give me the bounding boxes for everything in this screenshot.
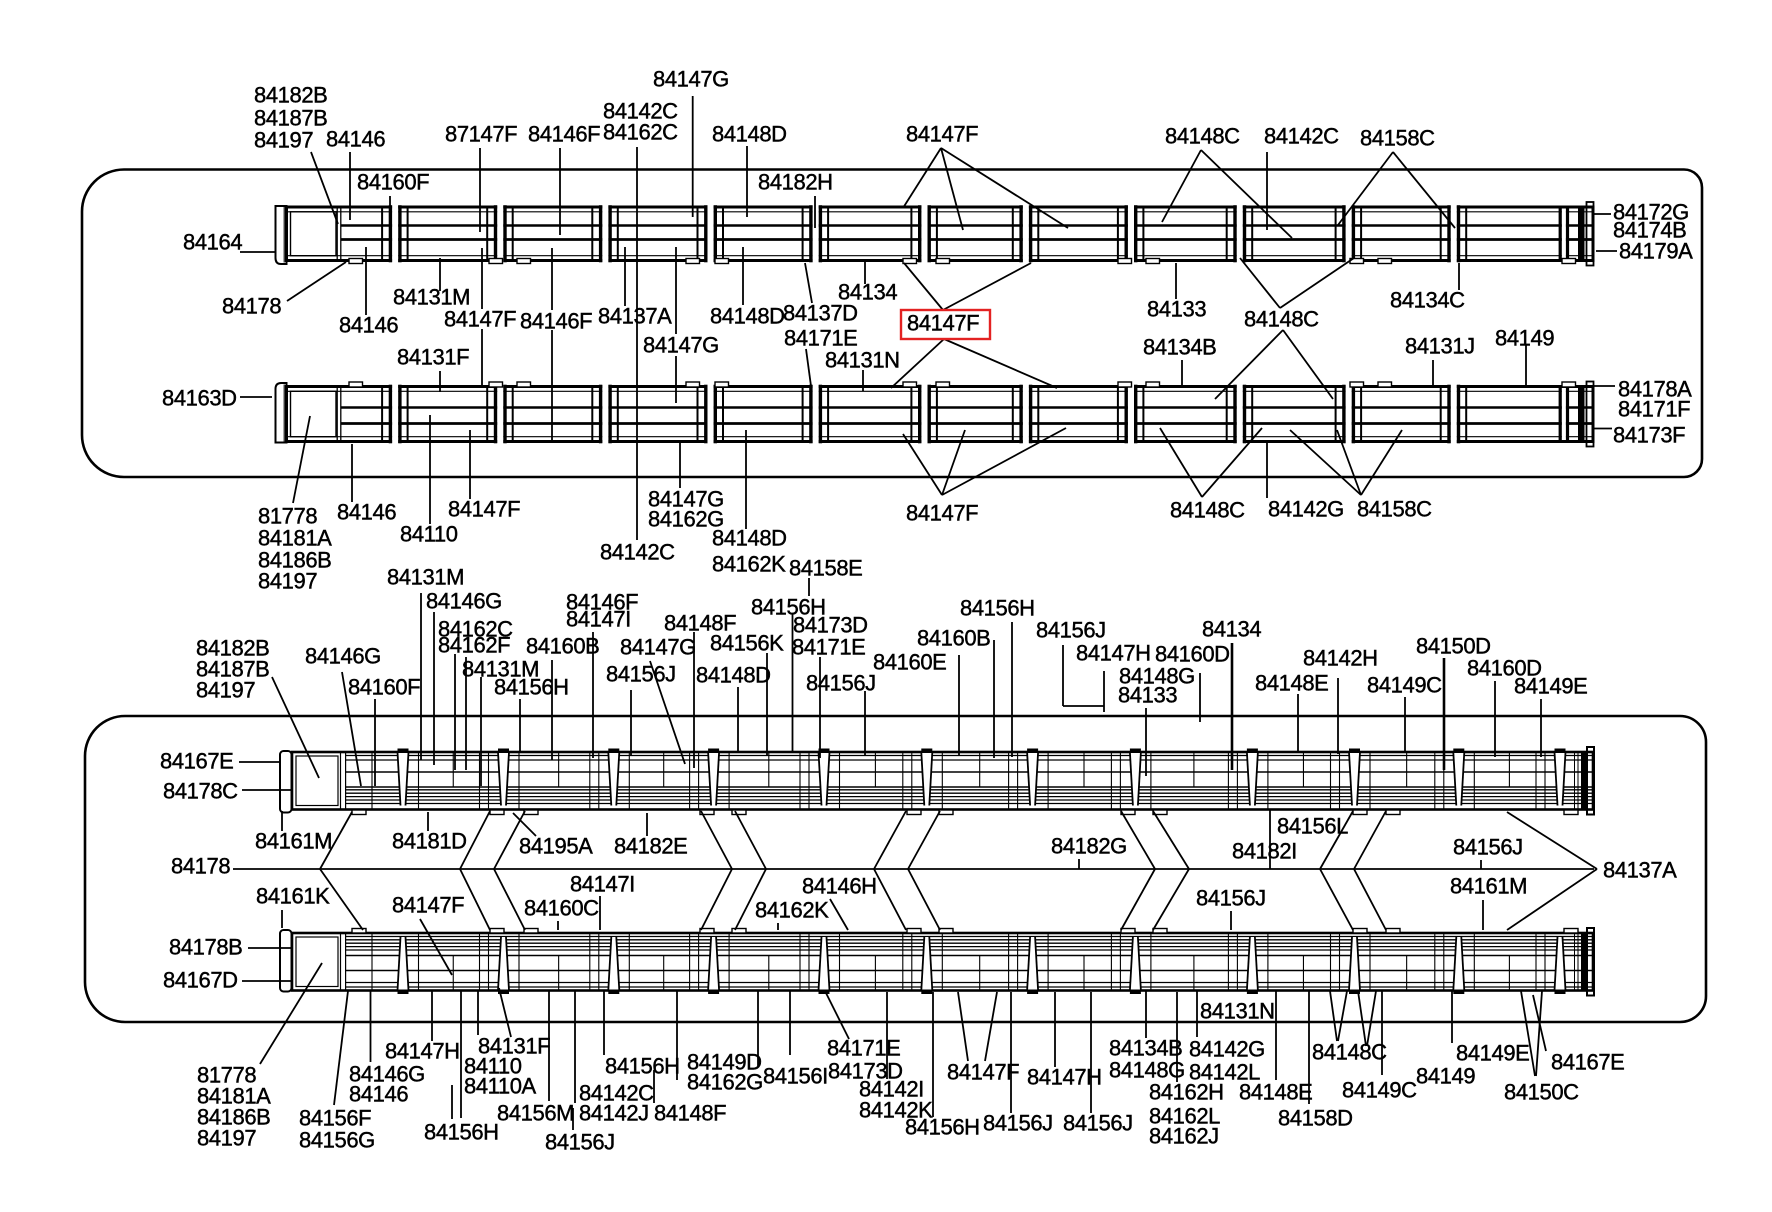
svg-text:84163D: 84163D	[162, 386, 237, 411]
svg-text:84147F: 84147F	[907, 311, 979, 336]
svg-text:84149E: 84149E	[1456, 1041, 1529, 1066]
svg-text:84162G: 84162G	[687, 1070, 763, 1095]
svg-text:84147I: 84147I	[566, 607, 631, 632]
svg-text:84133: 84133	[1118, 683, 1177, 708]
svg-text:84156M: 84156M	[497, 1101, 574, 1126]
svg-text:84147G: 84147G	[653, 67, 729, 92]
svg-text:84147F: 84147F	[444, 307, 516, 332]
svg-text:84134: 84134	[1202, 617, 1261, 642]
svg-text:84110A: 84110A	[464, 1074, 537, 1099]
svg-text:84134: 84134	[838, 280, 897, 305]
svg-text:84148C: 84148C	[1244, 307, 1319, 332]
svg-text:84162J: 84162J	[1149, 1124, 1219, 1149]
svg-text:84179A: 84179A	[1619, 239, 1693, 264]
svg-text:84142C: 84142C	[1264, 124, 1339, 149]
svg-text:84148C: 84148C	[1312, 1040, 1387, 1065]
svg-text:84133: 84133	[1147, 297, 1206, 322]
svg-text:84171E: 84171E	[792, 635, 865, 660]
svg-text:84147G: 84147G	[643, 333, 719, 358]
svg-text:84160B: 84160B	[526, 634, 599, 659]
svg-text:84167D: 84167D	[163, 968, 238, 993]
svg-text:84171F: 84171F	[1618, 397, 1690, 422]
svg-text:84156I: 84156I	[763, 1064, 828, 1089]
svg-text:84182I: 84182I	[1232, 839, 1297, 864]
svg-text:84197: 84197	[197, 1126, 256, 1151]
svg-text:84197: 84197	[258, 569, 317, 594]
svg-text:84131J: 84131J	[1405, 334, 1475, 359]
svg-text:84147H: 84147H	[385, 1039, 460, 1064]
svg-text:84156K: 84156K	[710, 631, 784, 656]
svg-text:84156H: 84156H	[960, 596, 1035, 621]
svg-text:84142G: 84142G	[1268, 497, 1344, 522]
svg-text:84148C: 84148C	[1165, 124, 1240, 149]
svg-text:84146G: 84146G	[426, 589, 502, 614]
svg-text:84182H: 84182H	[758, 170, 833, 195]
svg-text:84147G: 84147G	[620, 635, 696, 660]
svg-text:84134B: 84134B	[1143, 335, 1216, 360]
svg-text:84137A: 84137A	[1603, 858, 1677, 883]
svg-text:84156J: 84156J	[545, 1130, 615, 1155]
svg-text:84156J: 84156J	[1063, 1111, 1133, 1136]
svg-text:84160F: 84160F	[348, 675, 420, 700]
svg-text:84147F: 84147F	[392, 893, 464, 918]
svg-text:84156J: 84156J	[1036, 618, 1106, 643]
svg-text:84131N: 84131N	[825, 348, 900, 373]
svg-text:84147H: 84147H	[1076, 641, 1151, 666]
svg-text:84142H: 84142H	[1303, 646, 1378, 671]
svg-text:84160B: 84160B	[917, 626, 990, 651]
svg-text:84182B: 84182B	[254, 83, 327, 108]
svg-text:84158C: 84158C	[1360, 126, 1435, 151]
svg-text:84156J: 84156J	[806, 671, 876, 696]
svg-text:84182G: 84182G	[1051, 834, 1127, 859]
svg-text:84146: 84146	[326, 127, 385, 152]
svg-text:84178: 84178	[222, 294, 281, 319]
svg-text:84149C: 84149C	[1367, 673, 1442, 698]
svg-text:84164: 84164	[183, 230, 242, 255]
svg-text:84156G: 84156G	[299, 1128, 375, 1153]
svg-text:84148D: 84148D	[696, 663, 771, 688]
svg-text:84161M: 84161M	[255, 829, 332, 854]
svg-text:84149C: 84149C	[1342, 1078, 1417, 1103]
svg-text:84158E: 84158E	[789, 556, 862, 581]
svg-text:84137A: 84137A	[598, 304, 672, 329]
svg-text:84158C: 84158C	[1357, 497, 1432, 522]
svg-text:84146F: 84146F	[520, 309, 592, 334]
svg-text:84156J: 84156J	[983, 1111, 1053, 1136]
svg-text:84142G: 84142G	[1189, 1037, 1265, 1062]
svg-text:84160F: 84160F	[357, 170, 429, 195]
svg-text:84160E: 84160E	[873, 650, 946, 675]
svg-text:84156H: 84156H	[494, 675, 569, 700]
svg-text:84146G: 84146G	[305, 644, 381, 669]
svg-text:84181D: 84181D	[392, 829, 467, 854]
svg-text:84142C: 84142C	[600, 540, 675, 565]
svg-text:84156H: 84156H	[424, 1120, 499, 1145]
svg-text:84149: 84149	[1495, 326, 1554, 351]
svg-text:84131M: 84131M	[387, 565, 464, 590]
svg-text:84148F: 84148F	[654, 1101, 726, 1126]
svg-text:84171E: 84171E	[827, 1036, 900, 1061]
svg-text:84149: 84149	[1416, 1064, 1475, 1089]
svg-text:84162C: 84162C	[603, 120, 678, 145]
svg-text:84146: 84146	[339, 313, 398, 338]
svg-text:84178: 84178	[171, 854, 230, 879]
svg-text:84148D: 84148D	[712, 122, 787, 147]
svg-text:84178B: 84178B	[169, 935, 242, 960]
svg-text:84146: 84146	[349, 1082, 408, 1107]
svg-text:87147F: 87147F	[445, 122, 517, 147]
svg-text:84146H: 84146H	[802, 874, 877, 899]
svg-text:84148E: 84148E	[1239, 1080, 1312, 1105]
svg-text:84197: 84197	[196, 678, 255, 703]
svg-text:84147F: 84147F	[448, 497, 520, 522]
svg-text:84162F: 84162F	[438, 633, 510, 658]
svg-text:84162K: 84162K	[755, 898, 829, 923]
svg-text:84148D: 84148D	[712, 526, 787, 551]
svg-text:84161M: 84161M	[1450, 874, 1527, 899]
svg-text:84148E: 84148E	[1255, 671, 1328, 696]
svg-text:84146F: 84146F	[528, 122, 600, 147]
svg-text:84195A: 84195A	[519, 834, 593, 859]
svg-text:84167E: 84167E	[160, 749, 233, 774]
svg-text:84149E: 84149E	[1514, 674, 1587, 699]
svg-text:84148C: 84148C	[1170, 498, 1245, 523]
svg-text:84162H: 84162H	[1149, 1080, 1224, 1105]
svg-text:84147F: 84147F	[906, 501, 978, 526]
svg-text:84134C: 84134C	[1390, 288, 1465, 313]
svg-text:84148D: 84148D	[710, 304, 785, 329]
svg-text:84178C: 84178C	[163, 779, 238, 804]
svg-text:84156H: 84156H	[905, 1115, 980, 1140]
svg-text:84146: 84146	[337, 500, 396, 525]
svg-text:84131F: 84131F	[397, 345, 469, 370]
svg-text:84182E: 84182E	[614, 834, 687, 859]
svg-text:84158D: 84158D	[1278, 1106, 1353, 1131]
svg-text:84147I: 84147I	[570, 872, 635, 897]
svg-text:84173F: 84173F	[1613, 423, 1685, 448]
svg-text:84156H: 84156H	[605, 1054, 680, 1079]
svg-text:84147F: 84147F	[947, 1060, 1019, 1085]
svg-text:84131N: 84131N	[1200, 999, 1275, 1024]
svg-text:84147H: 84147H	[1027, 1065, 1102, 1090]
svg-text:84110: 84110	[400, 522, 458, 547]
svg-text:84156L: 84156L	[1277, 814, 1348, 839]
svg-text:84156J: 84156J	[1453, 835, 1523, 860]
svg-text:84147F: 84147F	[906, 122, 978, 147]
svg-text:84150C: 84150C	[1504, 1080, 1579, 1105]
svg-text:84156J: 84156J	[1196, 886, 1266, 911]
svg-text:84160C: 84160C	[524, 896, 599, 921]
svg-text:84197: 84197	[254, 128, 313, 153]
svg-text:84156J: 84156J	[606, 662, 676, 687]
svg-text:84142J: 84142J	[579, 1101, 649, 1126]
svg-text:84162K: 84162K	[712, 552, 786, 577]
svg-text:84167E: 84167E	[1551, 1050, 1624, 1075]
svg-text:84161K: 84161K	[256, 884, 330, 909]
